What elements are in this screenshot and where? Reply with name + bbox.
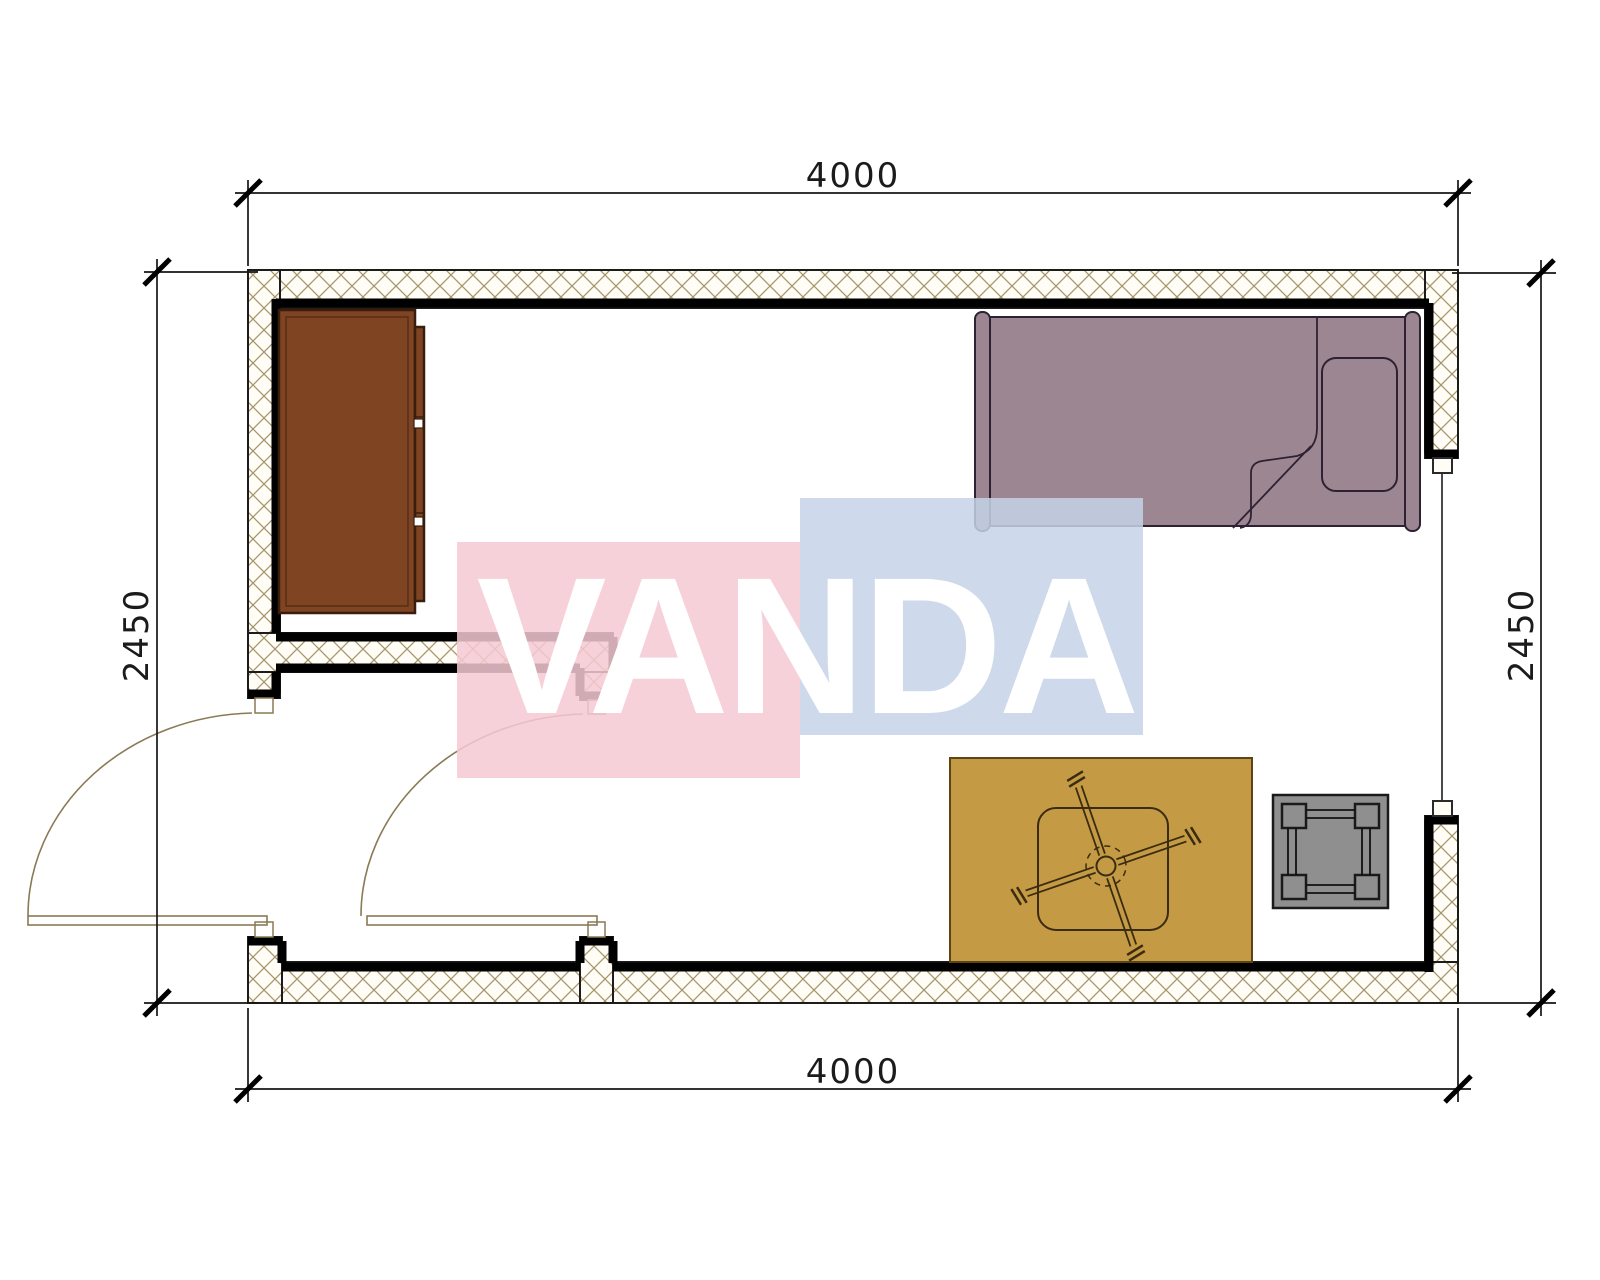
dimension-right: 2450	[1452, 260, 1556, 1016]
dimension-label-left: 2450	[117, 588, 157, 683]
wardrobe-door-strip	[415, 327, 424, 601]
stool	[1273, 795, 1388, 908]
wardrobe-handle	[414, 517, 423, 526]
window	[1433, 458, 1452, 816]
bed-footboard-bar	[1405, 312, 1420, 531]
floor-plan-canvas: 4000 4000 2450 2450 VANDA	[0, 0, 1600, 1280]
floor-plan-drawing: 4000 4000 2450 2450 VANDA	[0, 0, 1600, 1280]
wardrobe	[279, 310, 424, 613]
extension-line	[144, 272, 258, 1003]
wardrobe-body	[279, 310, 415, 613]
bed-pillow	[1322, 358, 1397, 491]
stool-leg	[1282, 804, 1306, 828]
dimension-left: 2450	[117, 259, 258, 1016]
stool-leg	[1355, 875, 1379, 899]
rug-and-table	[950, 743, 1252, 990]
dimension-label-right: 2450	[1502, 588, 1542, 683]
door-jamb	[255, 698, 273, 713]
dimension-bottom: 4000	[235, 1008, 1471, 1102]
dimension-top: 4000	[235, 156, 1471, 266]
stool-leg	[1282, 875, 1306, 899]
door-leaf	[28, 916, 267, 925]
watermark: VANDA	[457, 498, 1143, 778]
wardrobe-handle	[414, 419, 423, 428]
window-cap-top	[1433, 458, 1452, 473]
door-swing-arc	[28, 713, 252, 916]
dimension-label-top: 4000	[806, 156, 901, 196]
dimension-label-bottom: 4000	[806, 1052, 901, 1092]
entry-door	[28, 698, 273, 937]
wall-bottom-stub-right	[580, 937, 613, 1003]
wall-bottom-stub-left	[248, 937, 282, 1003]
watermark-text: VANDA	[477, 537, 1136, 755]
door-leaf	[367, 916, 597, 925]
window-cap-bottom	[1433, 801, 1452, 816]
stool-leg	[1355, 804, 1379, 828]
